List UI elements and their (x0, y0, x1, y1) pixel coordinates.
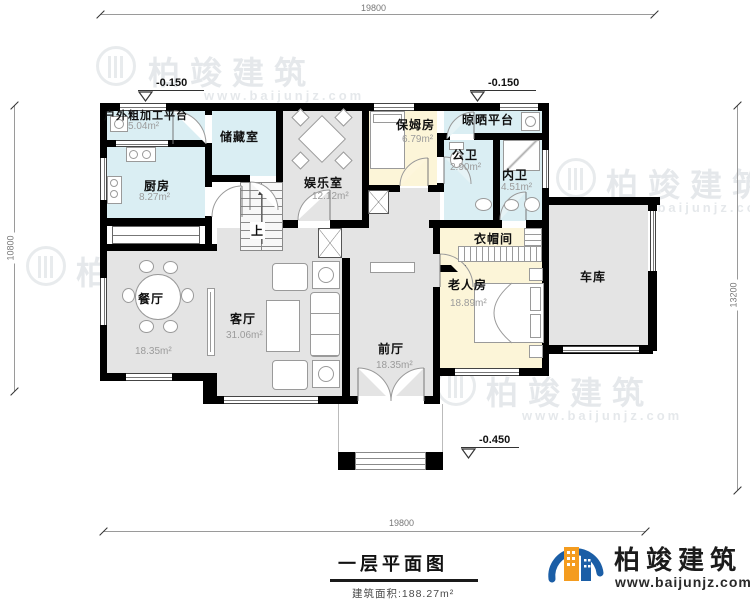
elevation-marker-icon (470, 91, 486, 102)
dimension-line-top (100, 14, 655, 15)
total-area-label: 建筑面积:188.27m² (352, 586, 454, 601)
dining-chair (163, 261, 178, 274)
watermark-logo-icon (96, 46, 136, 86)
room-area-kitchen: 8.27m² (139, 192, 170, 203)
dimension-label-top: 19800 (358, 3, 389, 13)
dining-chair (181, 288, 194, 303)
window (455, 368, 519, 376)
watermark-logo-icon (556, 158, 596, 198)
garage-door (563, 346, 639, 353)
door-arc (212, 186, 242, 217)
coffee-table (266, 300, 300, 352)
elevation-label: -0.150 (156, 77, 187, 89)
entry-porch (338, 404, 443, 454)
watermark-logo-icon (26, 246, 66, 286)
room-area-dining: 18.35m² (135, 346, 172, 357)
dimension-label-left: 10800 (6, 232, 16, 263)
washing-machine-drum (525, 116, 536, 127)
room-area-public-bath: 2.90m² (450, 162, 481, 173)
room-label-nanny: 保姆房 (396, 116, 435, 133)
room-label-garage: 车库 (580, 268, 606, 285)
toilet-bowl (524, 197, 540, 212)
room-area-living: 31.06m² (226, 330, 263, 341)
bathroom-sink (475, 198, 492, 211)
nightstand (529, 268, 543, 281)
floor-lamp (318, 267, 334, 283)
dining-chair (163, 320, 178, 333)
window (112, 226, 200, 244)
company-url: www.baijunjz.com (615, 574, 750, 590)
armchair (272, 360, 308, 390)
floor-lamp (318, 366, 334, 382)
company-logo-icon (544, 533, 608, 597)
entry-door-arc (391, 368, 424, 401)
window (100, 158, 107, 200)
room-area-outdoor-platform: 5.04m² (128, 121, 159, 132)
window (116, 140, 168, 147)
elevation-marker-icon (138, 91, 154, 102)
garage-side-door (650, 211, 656, 271)
company-name: 柏竣建筑 (614, 540, 742, 577)
window (374, 103, 414, 111)
floor-plan-sheet: 柏竣建筑 www.baijunjz.com 柏竣建筑 www.baijunjz.… (0, 0, 750, 603)
elevation-line (138, 90, 204, 91)
room-label-entertainment: 娱乐室 (304, 174, 343, 191)
sofa (310, 292, 340, 357)
elevation-line (470, 90, 536, 91)
dimension-label-bottom: 19800 (386, 518, 417, 528)
duct-shaft (368, 190, 389, 214)
wardrobe-rack (524, 228, 542, 246)
elevation-label: -0.150 (488, 77, 519, 89)
dimension-line-bottom (103, 531, 646, 532)
door-arc (250, 182, 278, 210)
elevation-label: -0.450 (479, 434, 510, 446)
room-label-cloakroom: 衣帽间 (474, 230, 513, 247)
duct-shaft (318, 228, 342, 258)
window (542, 150, 549, 188)
room-label-dining: 餐厅 (138, 290, 164, 307)
elevation-marker-icon (461, 448, 477, 459)
elevation-line (461, 447, 519, 448)
room-label-public-bath: 公卫 (452, 146, 478, 163)
entry-steps (355, 452, 426, 470)
console-table (370, 262, 415, 273)
title-underline (330, 579, 478, 582)
room-area-entertainment: 12.12m² (312, 191, 349, 202)
nightstand (529, 345, 543, 358)
elder-bed-pillow (530, 314, 541, 338)
room-area-foyer: 18.35m² (376, 360, 413, 371)
bathroom-sink (504, 199, 519, 211)
room-label-storage: 储藏室 (220, 128, 259, 145)
tv-cabinet (207, 288, 215, 356)
room-area-nanny: 6.79m² (402, 134, 433, 145)
window (224, 396, 318, 404)
armchair (272, 263, 308, 291)
room-label-private-bath: 内卫 (502, 166, 528, 183)
wardrobe-rack (458, 246, 542, 262)
room-area-private-bath: 4.51m² (501, 182, 532, 193)
dining-chair (122, 288, 135, 303)
dimension-label-right: 13200 (729, 279, 739, 310)
dining-chair (139, 320, 154, 333)
room-label-living: 客厅 (230, 310, 256, 327)
dining-chair (139, 260, 154, 273)
tv-screen (210, 292, 211, 352)
room-label-foyer: 前厅 (378, 340, 404, 357)
elder-bed-pillow (530, 287, 541, 311)
room-area-elder-room: 18.89m² (450, 298, 487, 309)
stove-burner (110, 190, 118, 198)
kitchen-sink-bowl (142, 150, 151, 159)
entry-door-arc (358, 368, 391, 401)
window (100, 278, 107, 325)
drawing-title: 一层平面图 (338, 550, 448, 576)
room-label-drying-platform: 晾晒平台 (462, 111, 514, 128)
stairs-up-label: 上 (250, 222, 265, 239)
window (500, 103, 538, 111)
room-label-elder-room: 老人房 (448, 276, 487, 293)
window (126, 373, 172, 381)
kitchen-sink-bowl (129, 150, 138, 159)
stove-burner (110, 179, 118, 187)
